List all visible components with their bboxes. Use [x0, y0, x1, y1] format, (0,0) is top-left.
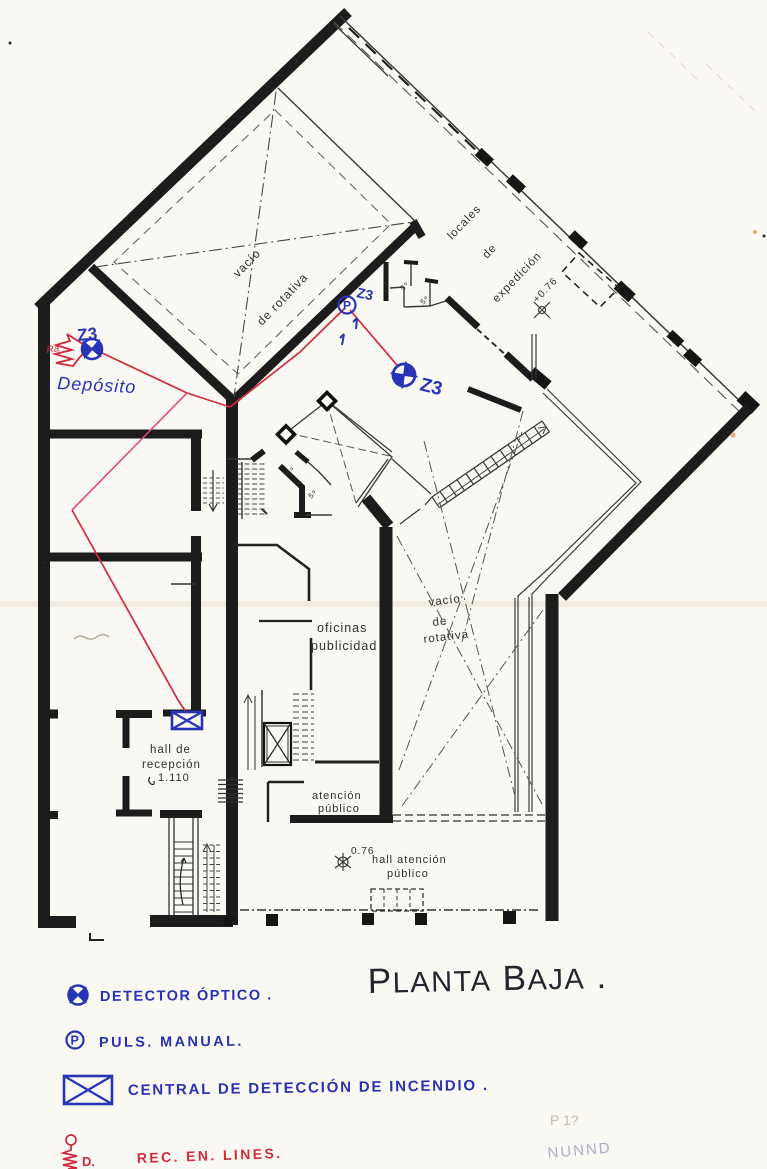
svg-text:DETECTOR ÓPTICO .: DETECTOR ÓPTICO . [100, 985, 273, 1005]
svg-text:P: P [343, 299, 351, 313]
svg-text:Depósito: Depósito [57, 373, 137, 397]
svg-text:D.: D. [82, 1154, 95, 1169]
svg-text:oficinas: oficinas [317, 621, 367, 635]
svg-text:público: público [318, 803, 360, 815]
svg-text:P: P [71, 1034, 79, 1048]
svg-text:1.110: 1.110 [158, 772, 190, 784]
svg-text:Z3: Z3 [76, 324, 98, 345]
svg-text:hall de: hall de [150, 744, 191, 756]
svg-text:de: de [432, 615, 448, 629]
svg-text:hall atención: hall atención [372, 854, 447, 866]
svg-text:Ra: Ra [46, 343, 61, 356]
svg-text:recepción: recepción [142, 759, 201, 771]
svg-text:PULS. MANUAL.: PULS. MANUAL. [99, 1034, 244, 1051]
svg-text:0.76: 0.76 [351, 846, 374, 857]
svg-text:público: público [387, 868, 429, 880]
svg-text:P 1?: P 1? [550, 1112, 579, 1128]
svg-text:publicidad: publicidad [311, 639, 377, 653]
svg-text:atención: atención [312, 790, 362, 802]
